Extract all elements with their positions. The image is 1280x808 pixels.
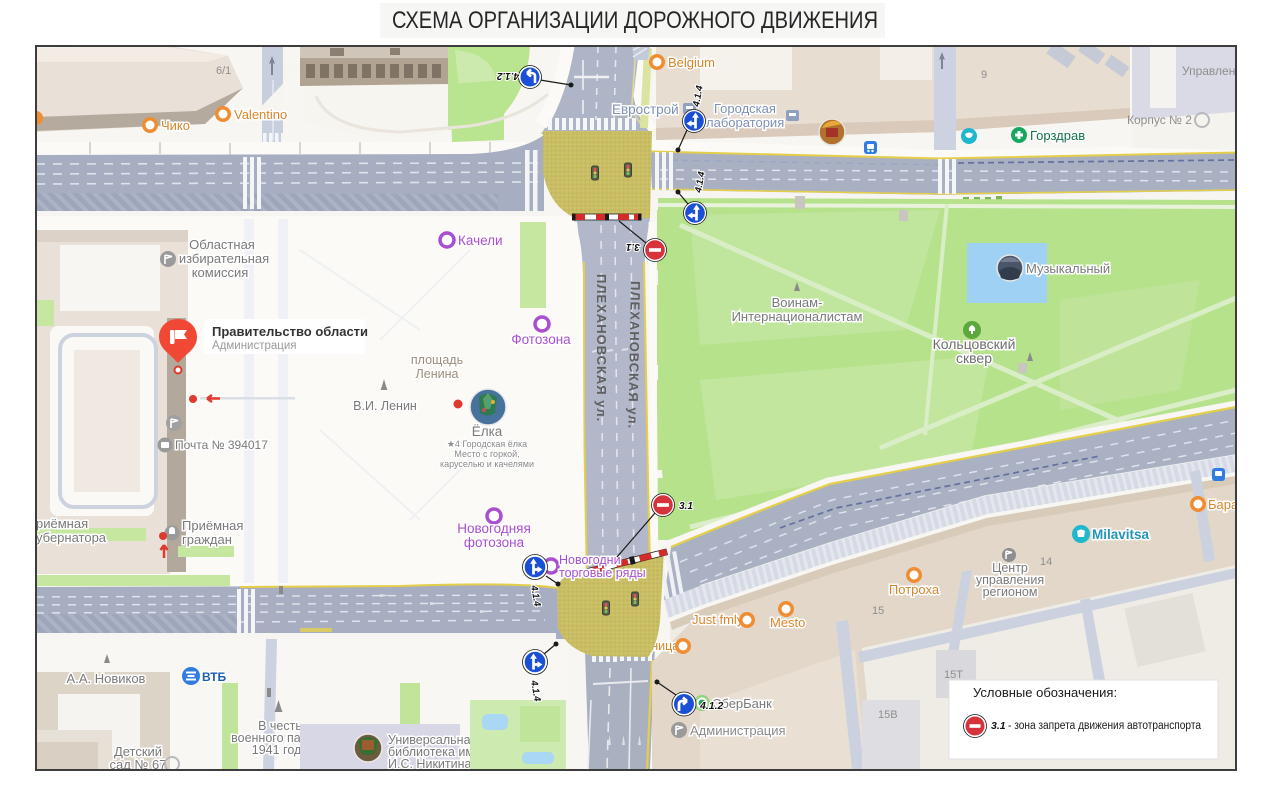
svg-text:фотозона: фотозона xyxy=(464,535,525,550)
svg-text:Фотозона: Фотозона xyxy=(511,332,571,347)
svg-text:Приёмная: Приёмная xyxy=(182,518,243,533)
svg-text:Музыкальный: Музыкальный xyxy=(1026,261,1110,276)
svg-text:9: 9 xyxy=(981,69,987,81)
svg-text:Потроха: Потроха xyxy=(889,582,940,597)
svg-text:регионом: регионом xyxy=(983,585,1038,599)
svg-text:Milavitsa: Milavitsa xyxy=(1092,527,1150,542)
svg-text:Администрация: Администрация xyxy=(690,723,786,738)
svg-text:Интернационалистам: Интернационалистам xyxy=(732,309,863,324)
svg-text:- зона запрета движения автотр: - зона запрета движения автотранспорта xyxy=(1008,720,1202,732)
svg-text:Ленина: Ленина xyxy=(416,367,459,381)
svg-text:избирательная: избирательная xyxy=(179,251,269,266)
svg-text:ПЛЕХАНОВСКАЯ ул.: ПЛЕХАНОВСКАЯ ул. xyxy=(625,281,643,429)
svg-text:СХЕМА ОРГАНИЗАЦИИ ДОРОЖНОГО Д: СХЕМА ОРГАНИЗАЦИИ ДОРОЖНОГО ДВИЖЕНИЯ xyxy=(392,7,878,34)
svg-text:Управлен: Управлен xyxy=(1182,64,1235,78)
svg-text:Место с горкой,: Место с горкой, xyxy=(454,449,519,459)
svg-text:Mesto: Mesto xyxy=(770,615,805,630)
svg-text:★4 Городская ёлка: ★4 Городская ёлка xyxy=(447,439,527,449)
svg-text:Воинам-: Воинам- xyxy=(772,295,823,310)
svg-text:15В: 15В xyxy=(878,709,898,721)
svg-text:1941 года: 1941 года xyxy=(252,743,309,757)
svg-text:ПЛЕХАНОВСКАЯ ул.: ПЛЕХАНОВСКАЯ ул. xyxy=(594,274,609,422)
svg-text:15: 15 xyxy=(872,605,884,617)
svg-text:Новогодни: Новогодни xyxy=(559,553,621,567)
svg-text:Администрация: Администрация xyxy=(212,340,297,352)
svg-text:15Т: 15Т xyxy=(944,669,963,681)
svg-text:Правительство области: Правительство области xyxy=(212,324,368,339)
svg-text:убернатора: убернатора xyxy=(36,530,107,545)
svg-text:Еврострой: Еврострой xyxy=(612,102,679,117)
svg-text:торговые ряды: торговые ряды xyxy=(559,566,646,580)
svg-text:4.1.2: 4.1.2 xyxy=(699,700,724,712)
svg-text:Belgium: Belgium xyxy=(668,55,715,70)
svg-text:Корпус № 2: Корпус № 2 xyxy=(1127,113,1192,127)
svg-text:сквер: сквер xyxy=(956,350,992,366)
svg-text:14: 14 xyxy=(1040,556,1052,568)
svg-text:ВТБ: ВТБ xyxy=(202,670,227,684)
svg-text:Just fmly: Just fmly xyxy=(692,612,744,627)
svg-text:граждан: граждан xyxy=(182,532,232,547)
svg-text:А.А. Новиков: А.А. Новиков xyxy=(67,671,146,686)
svg-text:В.И. Ленин: В.И. Ленин xyxy=(353,399,417,413)
svg-text:комиссия: комиссия xyxy=(192,265,249,280)
svg-text:Новогодняя: Новогодняя xyxy=(457,521,531,536)
svg-text:И.С. Никитина: И.С. Никитина xyxy=(388,757,472,771)
svg-text:Valentino: Valentino xyxy=(234,107,287,122)
svg-text:6/1: 6/1 xyxy=(216,65,231,77)
svg-text:3.1: 3.1 xyxy=(626,241,640,252)
svg-text:Городская: Городская xyxy=(714,101,776,116)
svg-text:Почта № 394017: Почта № 394017 xyxy=(175,438,268,452)
svg-text:Бара: Бара xyxy=(1208,497,1239,512)
svg-text:Областная: Областная xyxy=(189,237,255,252)
svg-text:лаборатория: лаборатория xyxy=(706,115,784,130)
svg-text:Горздрав: Горздрав xyxy=(1030,128,1085,143)
svg-text:Чико: Чико xyxy=(161,118,190,133)
svg-text:Качели: Качели xyxy=(458,233,503,248)
svg-text:риёмная: риёмная xyxy=(36,516,88,531)
svg-text:Ёлка: Ёлка xyxy=(472,424,503,439)
svg-text:Условные обозначения:: Условные обозначения: xyxy=(973,685,1117,700)
svg-text:3.1: 3.1 xyxy=(991,720,1006,732)
svg-text:3.1: 3.1 xyxy=(679,501,693,512)
svg-text:4.1.2: 4.1.2 xyxy=(496,70,520,81)
svg-text:каруселью и качелями: каруселью и качелями xyxy=(440,459,534,469)
svg-text:площадь: площадь xyxy=(411,353,463,367)
